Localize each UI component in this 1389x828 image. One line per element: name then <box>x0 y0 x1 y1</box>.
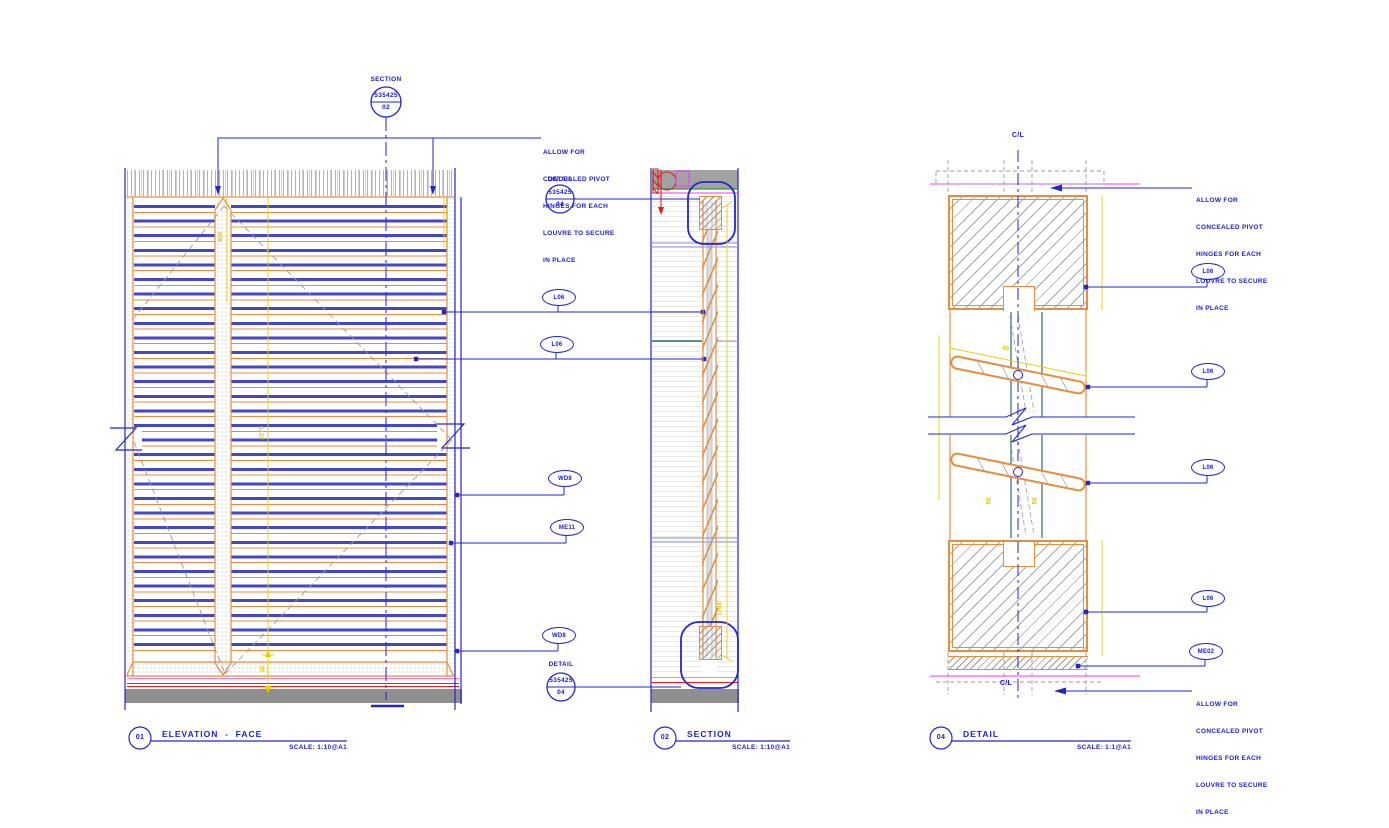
cad-drawing-sheet: SECTION 535425 02 ALLOW FOR CONCEALED PI… <box>0 0 1389 828</box>
note-line: IN PLACE <box>543 256 615 265</box>
note-line: HINGES FOR EACH <box>1196 250 1268 259</box>
note-line: LOUVRE TO SECURE <box>543 229 615 238</box>
view-04-number: 04 <box>930 734 952 741</box>
detail-marker-top-label: DETAIL <box>530 176 590 183</box>
centerline-label-top: C/L <box>998 132 1038 139</box>
view-02-number: 02 <box>654 734 676 741</box>
note-line: ALLOW FOR <box>1196 196 1268 205</box>
note-line: CONCEALED PIVOT <box>1196 727 1268 736</box>
note-line: HINGES FOR EACH <box>1196 754 1268 763</box>
hinge-note-right-top: ALLOW FOR CONCEALED PIVOT HINGES FOR EAC… <box>1196 178 1268 331</box>
tag-l06-elevation-1: L06 <box>542 289 576 306</box>
view-02-scale: SCALE: 1:10@A1 <box>683 744 790 751</box>
tag-l06-detail-2: L06 <box>1191 363 1225 380</box>
linework <box>0 0 1389 828</box>
section-marker-sheet: 02 <box>356 104 416 111</box>
view-01-number: 01 <box>129 734 151 741</box>
view-04-scale: SCALE: 1:1@A1 <box>1024 744 1131 751</box>
note-line: LOUVRE TO SECURE <box>1196 277 1268 286</box>
note-line: LOUVRE TO SECURE <box>1196 781 1268 790</box>
detail-marker-bottom-sheet: 04 <box>531 689 591 696</box>
tag-wd8-upper: WD8 <box>548 470 582 487</box>
dim-gap-right: 50 <box>1032 498 1038 505</box>
dim-gap-left: 50 <box>986 498 992 505</box>
dim-section-height: 1704 <box>718 602 724 615</box>
dim-blade: 40 <box>1001 345 1009 352</box>
tag-me11: ME11 <box>550 519 584 536</box>
tag-l06-elevation-2: L06 <box>540 336 574 353</box>
note-line: IN PLACE <box>1196 808 1268 817</box>
view-02-title: SECTION <box>687 729 732 739</box>
section-top-detail-callout-shape <box>688 182 735 244</box>
hinge-note-right-bottom: ALLOW FOR CONCEALED PIVOT HINGES FOR EAC… <box>1196 682 1268 828</box>
detail-marker-top-sheet: 04 <box>530 201 590 208</box>
section-marker-number: 535425 <box>356 92 416 99</box>
tag-l06-detail-3: L06 <box>1191 459 1225 476</box>
note-line: CONCEALED PIVOT <box>1196 223 1268 232</box>
centerline-label-bottom: C/L <box>986 680 1026 687</box>
view-01-scale: SCALE: 1:10@A1 <box>240 744 347 751</box>
note-line: ALLOW FOR <box>1196 700 1268 709</box>
dim-mullion: 600 <box>218 232 224 242</box>
view-01-title: ELEVATION - FACE <box>162 729 262 739</box>
detail-marker-top-number: 535425 <box>530 189 590 196</box>
section-bottom-detail-callout-shape <box>681 622 738 688</box>
note-line: IN PLACE <box>1196 304 1268 313</box>
detail-marker-bottom-label: DETAIL <box>531 661 591 668</box>
section-marker-label: SECTION <box>356 76 416 83</box>
note-line: ALLOW FOR <box>543 148 615 157</box>
tag-wd8-lower: WD8 <box>542 627 576 644</box>
dim-elevation-bottom: 30 <box>260 666 266 673</box>
view-04-title: DETAIL <box>963 729 999 739</box>
dim-elevation-height: 2270 <box>260 426 266 439</box>
detail-marker-bottom-number: 535425 <box>531 677 591 684</box>
tag-l06-detail-4: L06 <box>1191 590 1225 607</box>
tag-me02: ME02 <box>1189 643 1223 660</box>
